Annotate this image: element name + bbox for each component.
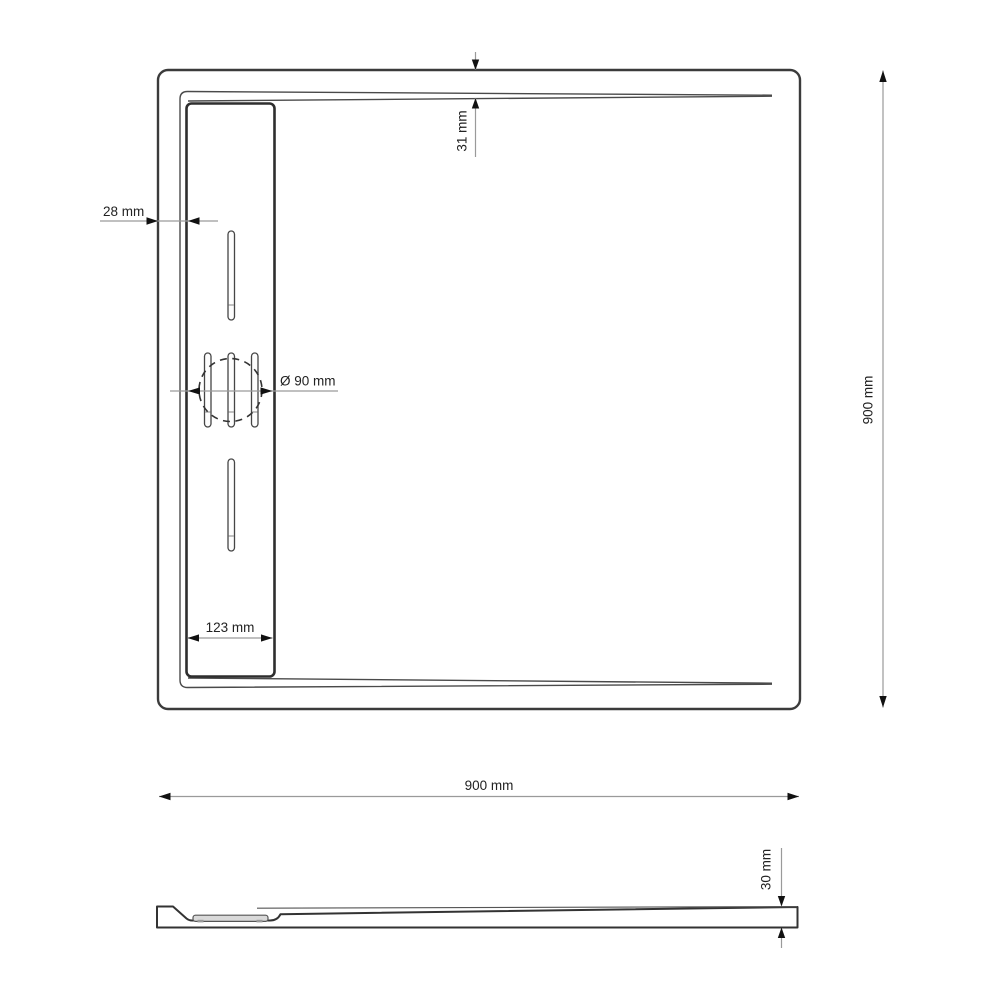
dim-label-31mm: 31 mm [455, 110, 470, 151]
arrowhead [778, 896, 785, 907]
dim-label-30mm: 30 mm [759, 849, 774, 890]
drain-slot-bottom [228, 459, 235, 551]
drain-cover-clip-left [198, 920, 204, 923]
drain-slot-mid-right [252, 353, 259, 427]
arrowhead [879, 71, 886, 83]
drain-slot-mid-left [205, 353, 212, 427]
arrowhead [778, 928, 785, 939]
dimension-900mm-horizontal: 900 mm [159, 778, 799, 800]
technical-drawing-page: 28 mm 31 mm Ø 90 mm [0, 0, 1000, 1000]
arrowhead [159, 793, 171, 800]
dim-label-900mm-horizontal: 900 mm [465, 778, 514, 793]
arrowhead [147, 217, 159, 224]
arrowhead [788, 793, 800, 800]
dim-label-123mm: 123 mm [206, 620, 255, 635]
dim-label-28mm: 28 mm [103, 204, 144, 219]
drain-slot-mid-center [228, 353, 235, 427]
top-view: 28 mm 31 mm Ø 90 mm [100, 52, 887, 709]
side-view: 900 mm 30 mm [157, 778, 799, 948]
dim-label-drain-diameter: Ø 90 mm [280, 374, 336, 389]
dimension-30mm: 30 mm [759, 848, 786, 948]
dimension-900mm-vertical: 900 mm [861, 71, 887, 708]
shower-tray-drawing: 28 mm 31 mm Ø 90 mm [0, 0, 1000, 1000]
arrowhead [879, 696, 886, 708]
dim-label-900mm-vertical: 900 mm [861, 376, 876, 425]
arrowhead [472, 60, 479, 71]
drain-slot-top [228, 231, 235, 320]
drain-cover-clip-right [257, 920, 263, 923]
